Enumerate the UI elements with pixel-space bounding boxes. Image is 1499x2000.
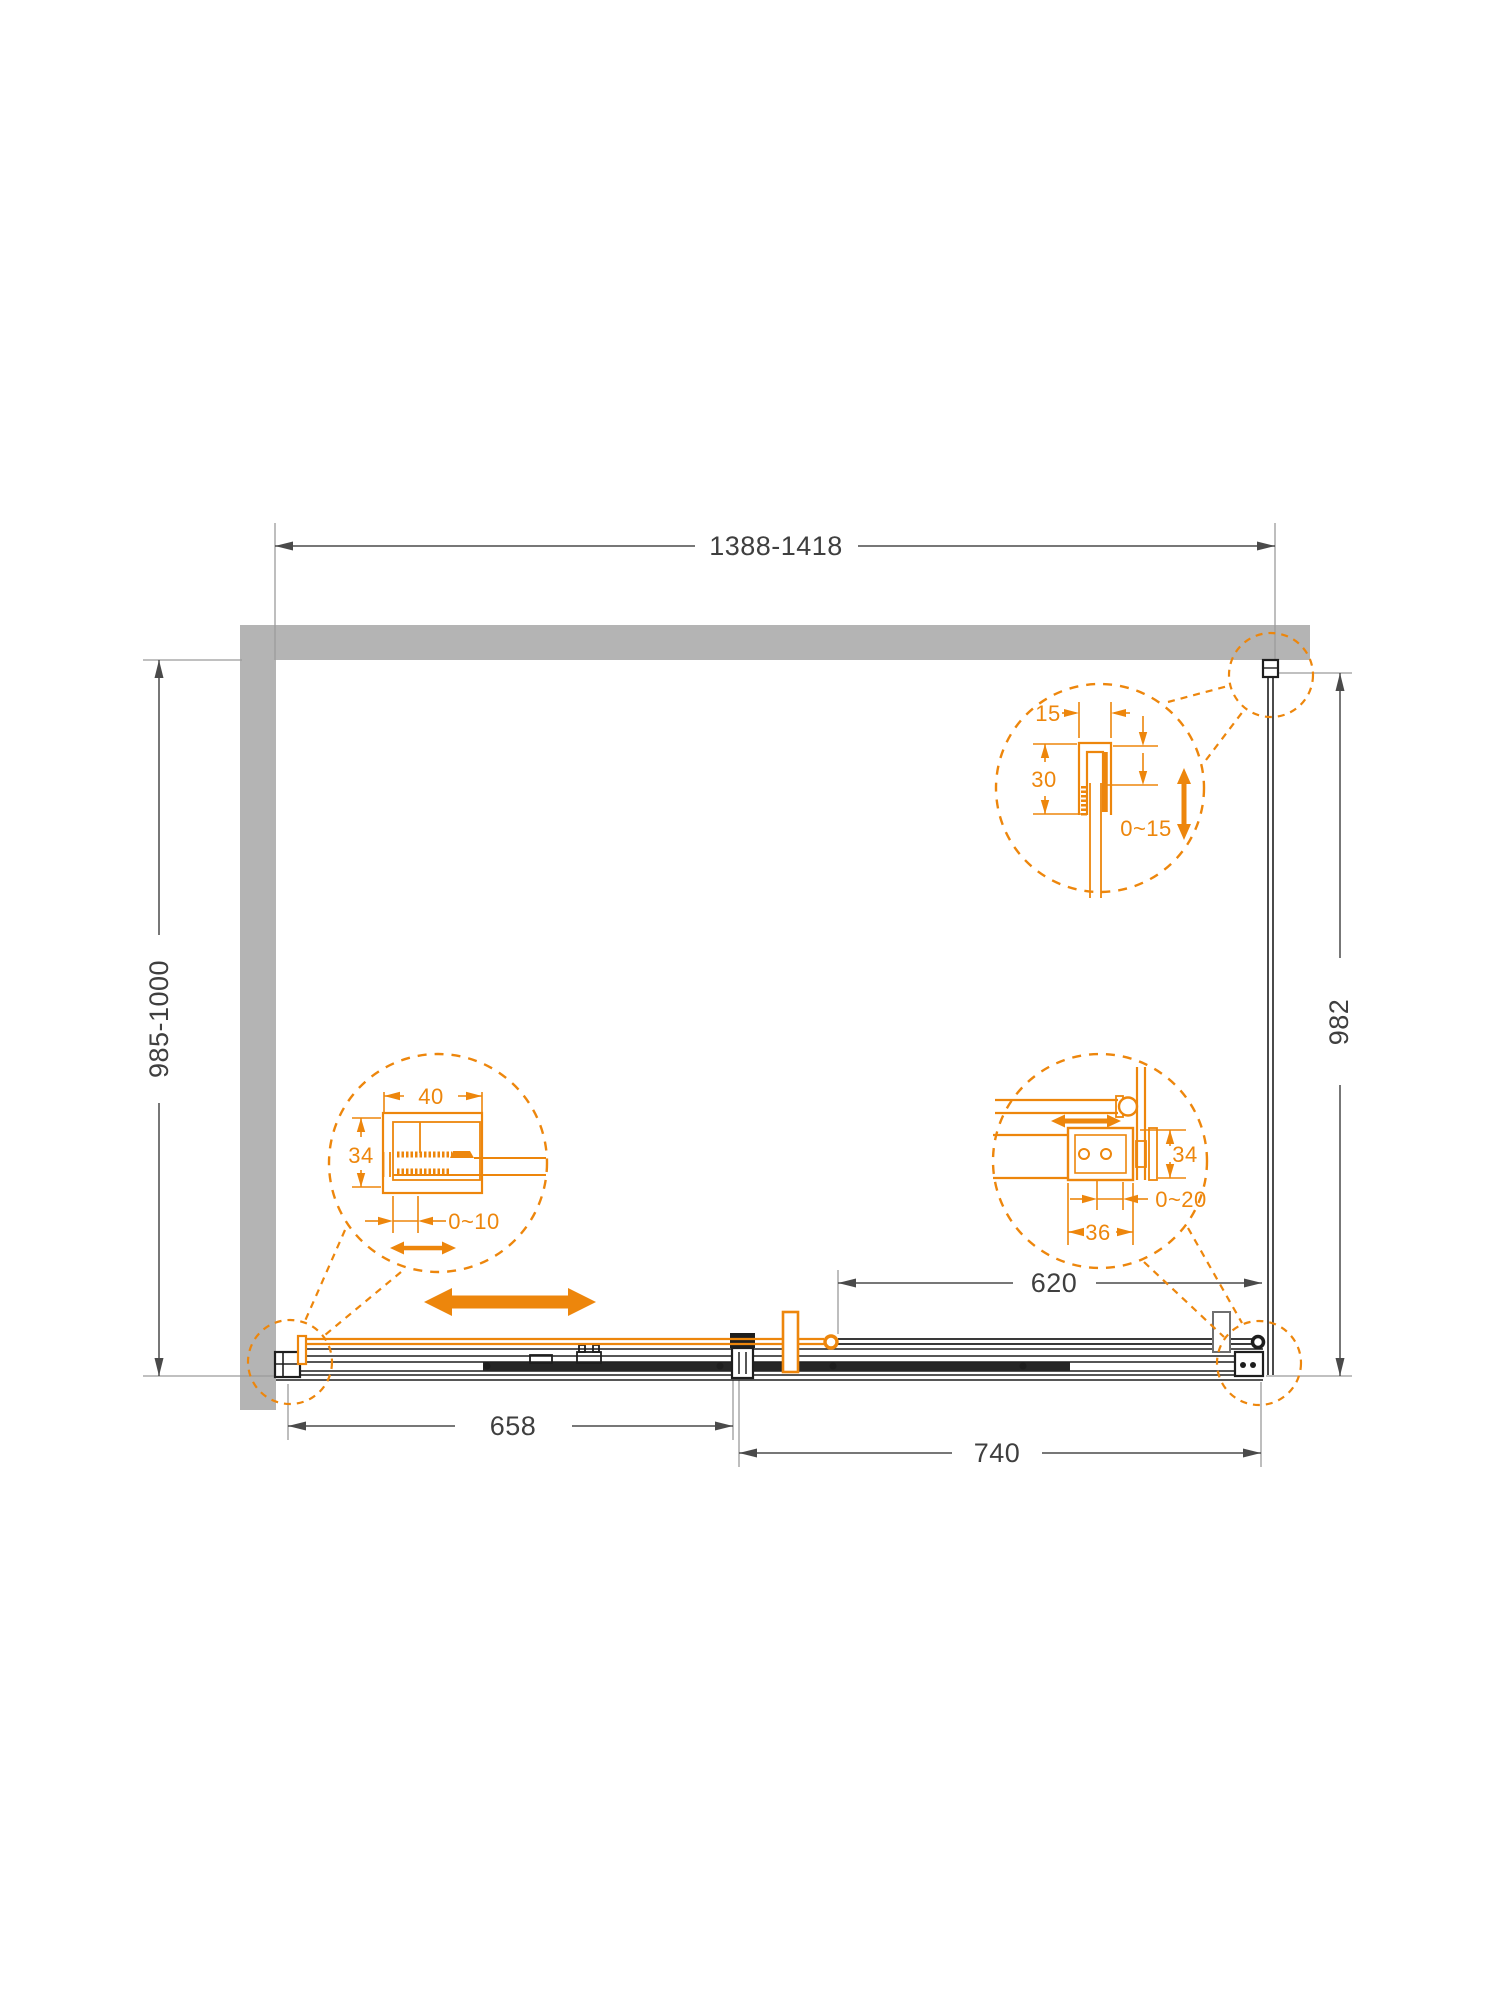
- detail3-adjust-label: 0~20: [1155, 1187, 1207, 1212]
- dimension-opening-width: 620: [838, 1268, 1262, 1298]
- roller-bracket: [577, 1345, 601, 1363]
- dimension-side-panel-depth: 982: [1324, 673, 1354, 1376]
- door-left-cap: [298, 1336, 306, 1364]
- slide-direction-arrow: [424, 1288, 596, 1316]
- detail1-dim-adjust: 0~15: [1105, 716, 1172, 841]
- detail1-depth-label: 30: [1031, 767, 1056, 792]
- detail2-dim-depth: 34: [348, 1118, 381, 1187]
- fixed-segment-label: 658: [490, 1411, 537, 1441]
- screw: [830, 1363, 837, 1370]
- detail3-depth-label: 34: [1172, 1142, 1197, 1167]
- screw: [484, 1363, 491, 1370]
- opening-width-label: 620: [1031, 1268, 1078, 1298]
- track-assembly: [275, 1312, 1264, 1380]
- roller-shoe: [450, 1151, 474, 1158]
- rail-bar: [483, 1363, 731, 1372]
- dimension-fixed-segment: 658: [288, 1411, 733, 1441]
- detail2-dim-width: 40: [384, 1084, 482, 1113]
- detail-panel-connector: 34 0~20 36: [993, 1067, 1207, 1245]
- detail3-width-label: 36: [1085, 1220, 1110, 1245]
- detail-circle-wall-profile: [996, 684, 1204, 892]
- fixed-front-glass: [838, 1339, 1252, 1344]
- left-wall-profile: [275, 1352, 300, 1377]
- wall-left: [240, 625, 276, 1410]
- side-panel-depth-label: 982: [1324, 999, 1354, 1046]
- detail1-width-label: 15: [1035, 701, 1060, 726]
- overall-width-label: 1388-1418: [709, 531, 843, 561]
- detail1-dim-width: 15: [1035, 701, 1130, 738]
- side-panel: [1263, 660, 1278, 1375]
- dimension-door-segment: 740: [739, 1438, 1261, 1468]
- door-end-knob: [825, 1336, 837, 1348]
- glass-end-knob: [1253, 1337, 1264, 1348]
- screw: [717, 1363, 724, 1370]
- dimension-left-depth: 985-1000: [144, 660, 174, 1376]
- screw: [1020, 1363, 1027, 1370]
- walls: [240, 625, 1310, 1410]
- door-handle: [783, 1312, 798, 1372]
- detail2-dim-adjust: 0~10: [365, 1196, 500, 1234]
- detail3-adjust-arrow: [1051, 1115, 1121, 1128]
- detail-door-profile: 40 34 0~10: [348, 1084, 546, 1255]
- detail3-dim-adjust: 0~20: [1070, 1180, 1207, 1212]
- detail1-dim-depth: 30: [1031, 744, 1085, 814]
- detail2-depth-label: 34: [348, 1143, 373, 1168]
- technical-drawing: 1388-1418 985-1000 982 658 740 620: [0, 0, 1499, 2000]
- detail1-adjust-arrow: [1177, 768, 1191, 840]
- wall-top: [240, 625, 1310, 660]
- drawing-canvas: 1388-1418 985-1000 982 658 740 620: [0, 0, 1499, 2000]
- detail2-adjust-arrow: [390, 1242, 456, 1255]
- door-segment-label: 740: [974, 1438, 1021, 1468]
- extension-lines: [143, 523, 1352, 1467]
- callout-circles: [248, 633, 1313, 1405]
- right-end-block: [1235, 1352, 1263, 1376]
- dimension-overall-width: 1388-1418: [275, 531, 1275, 561]
- detail2-adjust-label: 0~10: [448, 1209, 500, 1234]
- detail1-adjust-label: 0~15: [1120, 816, 1172, 841]
- left-depth-label: 985-1000: [144, 960, 174, 1078]
- detail2-width-label: 40: [418, 1084, 443, 1109]
